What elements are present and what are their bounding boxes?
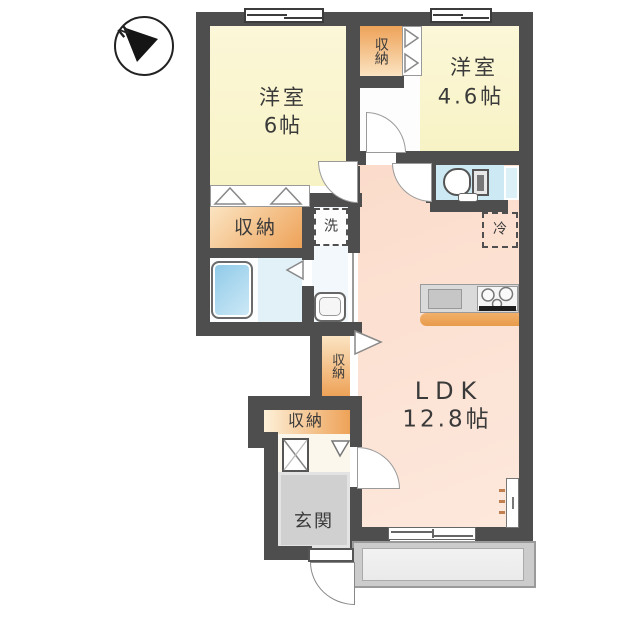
wall bbox=[202, 248, 304, 258]
wall bbox=[346, 12, 360, 165]
label-closet-mid: 収納 bbox=[234, 218, 278, 239]
toilet-window bbox=[504, 166, 519, 200]
toilet-pipe bbox=[458, 193, 478, 202]
heater-tick bbox=[499, 500, 505, 503]
wall bbox=[310, 336, 322, 398]
washbasin-bowl bbox=[319, 297, 341, 316]
wall bbox=[352, 76, 404, 88]
kitchen-sink bbox=[428, 289, 462, 309]
wall bbox=[248, 396, 356, 410]
label-ldk-size: 12.8帖 bbox=[402, 407, 491, 432]
heater-tick bbox=[499, 511, 505, 514]
balcony-inner bbox=[362, 548, 524, 581]
label-refrigerator: 冷 bbox=[493, 222, 507, 237]
label-ldk-name: LDK bbox=[415, 378, 484, 404]
front-door-leaf bbox=[308, 548, 354, 562]
kitchen-counter-front bbox=[420, 313, 519, 326]
label-bedroom2-name: 洋室 bbox=[450, 56, 498, 79]
folding-door-icon bbox=[404, 28, 420, 76]
wall bbox=[350, 396, 362, 447]
bath-folding-door-icon bbox=[286, 260, 304, 280]
floorplan: N bbox=[0, 0, 640, 640]
label-washing-machine: 洗 bbox=[324, 219, 338, 234]
heater-tick bbox=[499, 489, 505, 492]
label-bedroom1-name: 洋室 bbox=[259, 86, 307, 109]
window bbox=[244, 8, 324, 23]
wall bbox=[196, 322, 362, 336]
sliding-window bbox=[388, 527, 476, 540]
label-closet-top: 収納 bbox=[372, 37, 387, 65]
label-closet-vertical: 収納 bbox=[329, 353, 343, 379]
closet-door-v-icon bbox=[331, 440, 351, 458]
label-closet-hall: 収納 bbox=[288, 412, 324, 430]
entrance-genkan-floor bbox=[278, 472, 350, 548]
shoe-cabinet-cross-icon bbox=[282, 438, 309, 472]
toilet bbox=[443, 168, 471, 196]
door-arc-front bbox=[310, 562, 355, 605]
wall bbox=[196, 12, 210, 322]
closet-door-swing-icon bbox=[354, 330, 384, 356]
toilet-tank bbox=[472, 169, 489, 196]
label-bedroom1-size: 6帖 bbox=[264, 114, 302, 137]
window bbox=[430, 8, 492, 23]
washroom-sliding-door bbox=[352, 253, 354, 322]
stove-bar bbox=[479, 306, 516, 311]
label-entrance: 玄関 bbox=[294, 512, 334, 532]
label-bedroom2-size: 4.6帖 bbox=[438, 85, 504, 108]
compass-north-icon: N bbox=[110, 14, 180, 80]
wall bbox=[264, 440, 278, 560]
wall bbox=[352, 527, 390, 541]
wall bbox=[475, 527, 533, 541]
water-heater-panel bbox=[506, 478, 519, 528]
folding-door-icon bbox=[214, 187, 306, 205]
bathtub bbox=[211, 261, 253, 319]
wall bbox=[264, 546, 312, 560]
wall bbox=[302, 286, 314, 322]
wall bbox=[519, 12, 533, 542]
